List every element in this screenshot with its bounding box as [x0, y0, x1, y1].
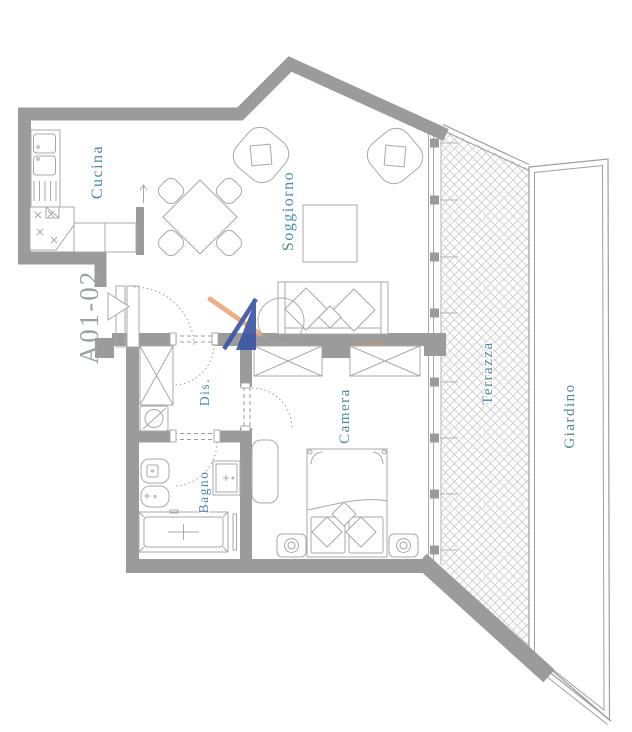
wardrobe [350, 346, 420, 376]
rug [303, 205, 357, 262]
bedroom-door [241, 383, 292, 431]
entry-marker [108, 293, 129, 320]
double-bed [307, 449, 387, 557]
watermark-tagline: since 2003 [351, 340, 385, 347]
label-bagno: Bagno [196, 471, 211, 514]
dining-set [155, 175, 244, 258]
nightstand [389, 534, 418, 557]
kitchen-passage-arrow [140, 185, 147, 203]
label-unit-number: A01-02 [74, 270, 104, 365]
label-cucina: Cucina [89, 145, 106, 199]
wardrobe [254, 346, 322, 376]
floor-plan-page: since 2003 Cucina Soggiorno Dis. Bagno C… [0, 0, 632, 732]
bathtub [139, 510, 228, 552]
floor-plan-canvas: since 2003 Cucina Soggiorno Dis. Bagno C… [0, 0, 632, 732]
corner-stove [30, 207, 74, 250]
label-giardino: Giardino [562, 383, 578, 448]
label-camera: Camera [337, 388, 353, 444]
toilet [141, 459, 169, 483]
drain-board [34, 181, 56, 201]
radiator [233, 514, 237, 550]
hallway-cabinet [140, 346, 173, 405]
sofa [278, 282, 388, 334]
label-soggiorno: Soggiorno [280, 171, 297, 251]
bidet [141, 486, 169, 507]
dresser [252, 440, 278, 503]
window-wall-junction [424, 333, 446, 356]
kitchen-wall-stub [136, 207, 144, 255]
bathroom-sink [213, 461, 240, 495]
living-hall-door [170, 333, 218, 385]
washing-machine [140, 406, 168, 431]
label-dis: Dis. [197, 378, 212, 406]
label-terrazza: Terrazza [480, 341, 496, 404]
kitchen-base-cabinets [74, 223, 136, 252]
nightstand [277, 534, 306, 557]
armchair [361, 122, 429, 190]
kitchen-sink-basin [34, 134, 56, 153]
wardrobe-pillar [322, 346, 350, 358]
